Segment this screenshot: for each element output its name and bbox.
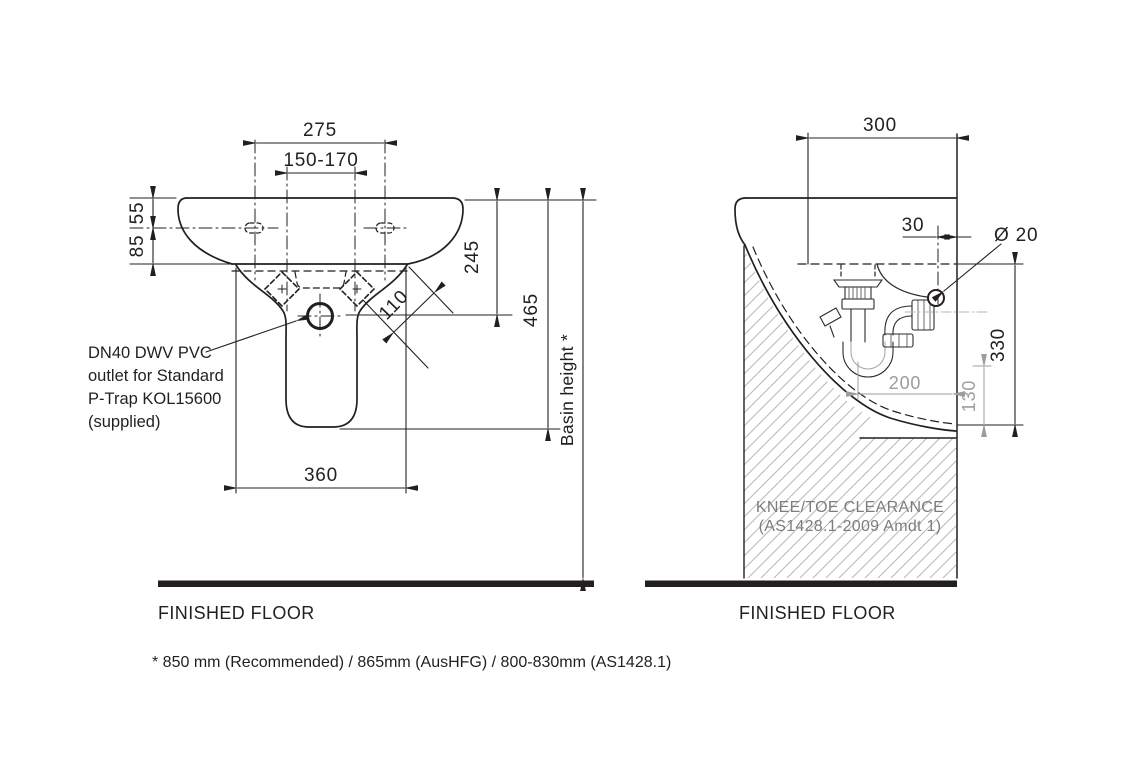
u-bend-inner: [851, 342, 885, 369]
basin-height-footnote: * 850 mm (Recommended) / 865mm (AusHFG) …: [152, 654, 671, 671]
dim-465-label: 465: [521, 293, 542, 327]
floor-label-front: FINISHED FLOOR: [158, 603, 315, 623]
pedestal-outline: [236, 265, 407, 427]
union-nut-trap: [883, 334, 913, 347]
floor-label-side: FINISHED FLOOR: [739, 603, 896, 623]
dim-85-label: 85: [127, 235, 148, 258]
outlet-note-line2: outlet for Standard: [88, 367, 224, 385]
outlet-leader-line: [206, 321, 296, 352]
dim-200-label: 200: [889, 373, 921, 393]
front-view: 275 150-170 55 85 245 465 110 360 Basin …: [88, 120, 596, 623]
waste-flange: [834, 280, 882, 287]
outlet-note-line4: (supplied): [88, 413, 160, 431]
knee-toe-clearance-line2: (AS1428.1-2009 Amdt 1): [759, 518, 942, 535]
outlet-note: DN40 DWV PVC outlet for Standard P-Trap …: [88, 344, 224, 431]
knee-toe-clearance-line1: KNEE/TOE CLEARANCE: [756, 499, 944, 516]
p-trap-assembly: [820, 264, 988, 377]
supply-hole: [928, 290, 944, 306]
dim-30-label: 30: [902, 215, 925, 236]
dim-360-label: 360: [304, 465, 338, 486]
dia20-leader-line: [944, 244, 1001, 291]
dim-275-label: 275: [303, 120, 337, 141]
dim-330-label: 330: [988, 328, 1009, 362]
outlet-note-line3: P-Trap KOL15600: [88, 390, 221, 408]
trap-nut-top: [842, 299, 874, 309]
centerlines: [130, 140, 408, 338]
dia-20-label: Ø 20: [994, 225, 1038, 246]
dimension-lines: [153, 143, 583, 578]
floor-line-side: [645, 581, 957, 588]
outlet-note-line1: DN40 DWV PVC: [88, 344, 212, 362]
basin-installation-drawing: 275 150-170 55 85 245 465 110 360 Basin …: [0, 0, 1140, 760]
supply-curve: [877, 264, 927, 297]
basin-height-label: Basin height *: [557, 334, 577, 446]
dim-130-label: 130: [959, 380, 979, 412]
trap-clip: [820, 308, 841, 337]
side-view: 300 30 Ø 20 330 200 130 KNEE/TOE CLEARAN…: [645, 115, 1038, 623]
dim-55-label: 55: [127, 202, 148, 225]
dim-150-170-label: 150-170: [283, 150, 358, 171]
technical-drawing-page: 275 150-170 55 85 245 465 110 360 Basin …: [0, 0, 1140, 760]
floor-line-front: [158, 581, 594, 588]
dim-245-label: 245: [462, 240, 483, 274]
dim-300-label: 300: [863, 115, 897, 136]
